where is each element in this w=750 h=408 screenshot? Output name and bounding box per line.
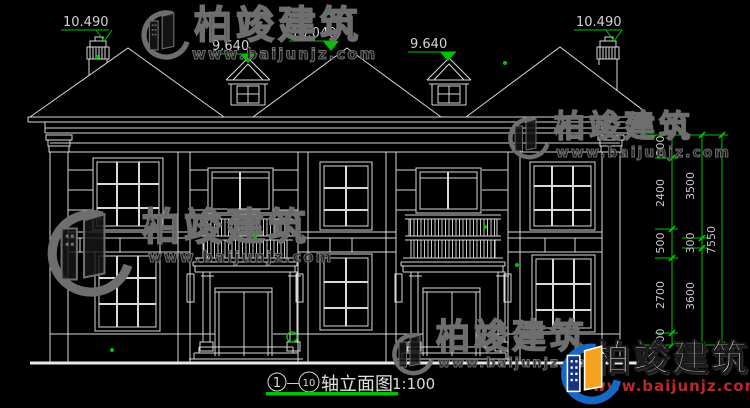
- right-porch-window: [416, 168, 481, 213]
- elevation-marker-right-dormer: 9.640: [408, 37, 456, 61]
- dim-label: 7550: [705, 226, 718, 254]
- elevation-symbol-icon: [606, 30, 622, 41]
- center-lower-window: [320, 254, 372, 330]
- elevation-markers: 10.490 9.640 10.040 9.640 10.490: [61, 15, 622, 63]
- right-balcony: [401, 215, 505, 272]
- dim-label: 3600: [684, 282, 697, 310]
- dim-label: 400: [654, 329, 667, 350]
- drawing-title: 轴立面图: [321, 374, 393, 395]
- elevation-value: 9.640: [212, 39, 249, 54]
- right-dormer: [427, 58, 471, 105]
- title-block: 1 — 10 轴立面图 1:100: [266, 372, 435, 396]
- left-balcony: [193, 215, 297, 272]
- dim-label: 3500: [684, 172, 697, 200]
- left-porch-column: [203, 272, 210, 342]
- elevation-value: 9.640: [410, 37, 447, 52]
- right-porch: [395, 272, 511, 351]
- dim-label: 500: [654, 233, 667, 254]
- dim-label: 2700: [654, 281, 667, 309]
- elevation-marker-left-dormer: 9.640: [210, 39, 258, 63]
- left-bay-upper-window: [93, 158, 163, 230]
- drawing-scale: 1:100: [392, 375, 435, 393]
- elevation-symbol-icon: [96, 30, 112, 41]
- elevation-marker-left-chimney: 10.490: [61, 15, 112, 41]
- left-porch-window: [208, 168, 273, 213]
- dim-label: 800: [654, 136, 667, 157]
- left-entry-door: [189, 288, 303, 359]
- dim-label: 2400: [654, 179, 667, 207]
- cad-elevation-screenshot: 10.490 9.640 10.040 9.640 10.490: [0, 0, 750, 408]
- elevation-value: 10.040: [291, 26, 337, 41]
- left-porch: [187, 272, 303, 351]
- left-hip-roof: [30, 48, 224, 117]
- right-porch-column: [411, 272, 418, 342]
- elevation-value: 10.490: [63, 15, 109, 30]
- elevation-value: 10.490: [576, 15, 622, 30]
- elevation-marker-right-chimney: 10.490: [574, 15, 622, 41]
- dimension-chain: 800 2400 500 2700 400 3500 300 3600 7550: [640, 132, 728, 350]
- building-elevation-drawing: 10.490 9.640 10.040 9.640 10.490: [0, 0, 750, 408]
- elevation-symbol-icon: [240, 54, 256, 63]
- axis-number: 10: [303, 378, 316, 389]
- right-hip-roof: [466, 47, 652, 117]
- elevation-symbol-icon: [440, 52, 456, 61]
- axis-separator: —: [287, 376, 300, 391]
- center-upper-window: [320, 162, 372, 230]
- right-bay-lower-window: [532, 255, 595, 332]
- axis-number: 1: [273, 376, 281, 391]
- elevation-marker-center-ridge: 10.040: [289, 26, 339, 51]
- right-bay-upper-window: [530, 162, 595, 230]
- dim-label: 300: [684, 233, 697, 254]
- left-dormer: [226, 58, 270, 105]
- roof-group: [28, 47, 652, 133]
- left-bay-lower-window: [95, 252, 160, 331]
- title-underline: [266, 392, 398, 396]
- facade-walls: [46, 135, 624, 363]
- center-roof: [253, 48, 441, 117]
- right-entry-door: [397, 288, 511, 359]
- elevation-symbol-icon: [323, 41, 339, 51]
